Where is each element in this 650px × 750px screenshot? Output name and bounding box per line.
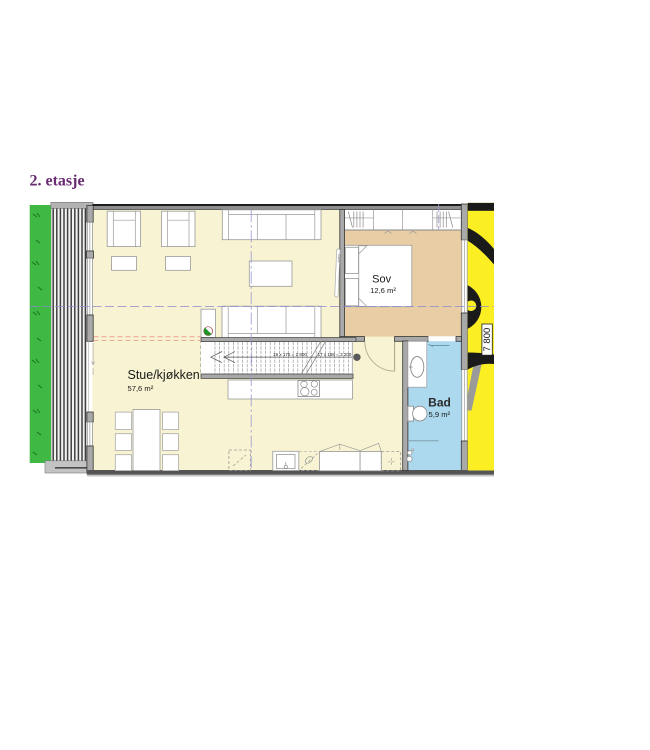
svg-text:Stue/kjøkken: Stue/kjøkken	[128, 368, 200, 382]
svg-text:Sov: Sov	[372, 274, 391, 286]
svg-text:17 x 188 = 3 200: 17 x 188 = 3 200	[318, 352, 352, 357]
svg-text:2. etasje: 2. etasje	[30, 173, 85, 190]
svg-text:Glass: Glass	[337, 254, 341, 263]
svg-text:5,9 m²: 5,9 m²	[429, 410, 451, 419]
svg-text:7 800: 7 800	[482, 328, 493, 352]
svg-text:Bad: Bad	[428, 396, 451, 410]
svg-text:12,6 m²: 12,6 m²	[370, 286, 396, 295]
svg-text:57,6 m²: 57,6 m²	[128, 384, 154, 393]
svg-text:16 x 175 = 2 800: 16 x 175 = 2 800	[273, 352, 307, 357]
